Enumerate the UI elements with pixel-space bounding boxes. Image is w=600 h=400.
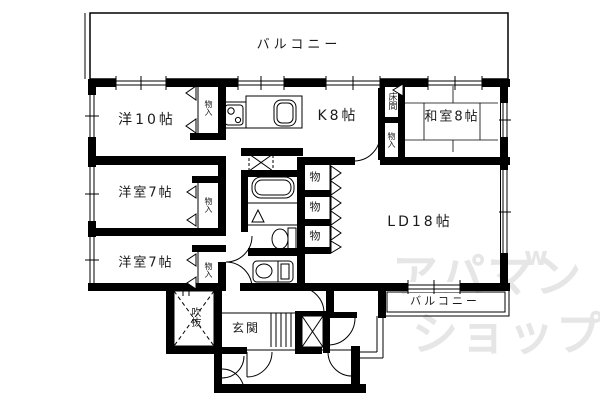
folding-door-zigzag — [331, 166, 341, 253]
tokonoma-label: 床間 — [387, 92, 396, 110]
room-west10-label: 洋10帖 — [118, 113, 176, 127]
window — [428, 76, 482, 90]
shaft-x-box — [302, 316, 323, 347]
washer-pan-icon — [252, 210, 264, 222]
balcony-bottom-label: バルコニー — [410, 296, 480, 307]
storage-label-1: 物 — [310, 172, 321, 183]
room-washitsu-label: 和室8帖 — [424, 111, 479, 124]
toilet-icon — [272, 228, 296, 250]
room-west7a-label: 洋室7帖 — [118, 187, 173, 200]
storage-label-2: 物 — [310, 202, 321, 213]
closet-label-west7a: 物入 — [204, 197, 212, 213]
window — [85, 167, 99, 221]
range-hood-dashed-box — [249, 154, 273, 171]
closet-label-west7b: 物入 — [204, 262, 212, 278]
floorplan: アパマン ショップ w — [0, 0, 600, 400]
window — [116, 76, 166, 90]
toilet-door — [226, 236, 252, 262]
kitchen-counter — [222, 96, 302, 128]
window — [238, 76, 284, 90]
hall-right-door — [328, 352, 352, 376]
window — [85, 237, 99, 283]
window — [326, 76, 380, 90]
genkan-steps — [271, 313, 291, 347]
room-kitchen-label: K8帖 — [317, 109, 358, 123]
room-west7b-label: 洋室7帖 — [118, 257, 173, 270]
bathtub-icon — [252, 177, 294, 198]
sink-icon — [274, 100, 296, 126]
window — [85, 95, 99, 137]
hall-left-door-a — [222, 356, 244, 378]
window — [408, 280, 460, 294]
storage-label-3: 物 — [310, 231, 321, 242]
vestibule-door — [328, 318, 355, 345]
closet-label-k: 物入 — [387, 132, 395, 148]
genkan-label: 玄関 — [232, 322, 260, 334]
room-ld-label: LD18帖 — [387, 215, 452, 229]
fukinuke-label: 吹抜 — [189, 307, 199, 327]
floorplan-drawing — [0, 0, 600, 400]
hall-mid-door — [247, 352, 272, 377]
kitchen-ld-door — [354, 135, 380, 161]
closet-label-west10: 物入 — [204, 100, 212, 116]
washbasin-icon — [253, 261, 293, 282]
balcony-top-label: バルコニー — [257, 39, 342, 52]
